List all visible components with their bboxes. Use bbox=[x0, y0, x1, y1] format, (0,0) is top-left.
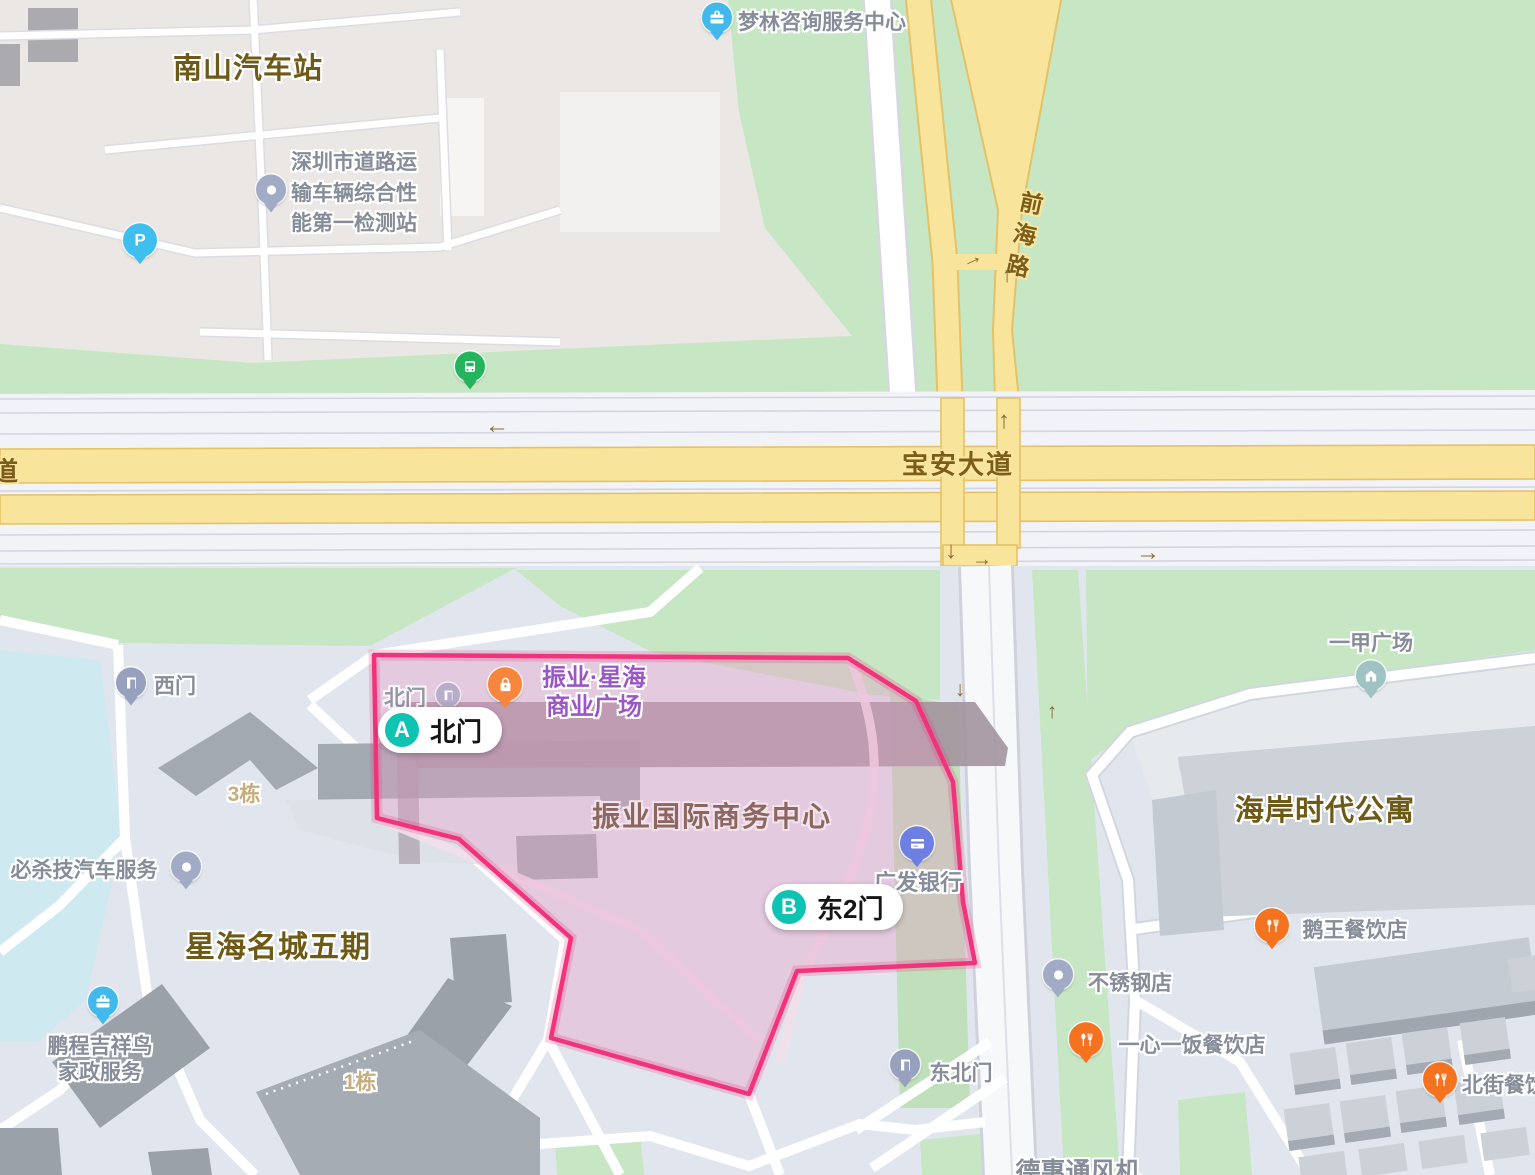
bank-card-icon bbox=[908, 834, 927, 853]
parking-pin[interactable]: P bbox=[123, 223, 157, 257]
shopping-plaza-pin[interactable] bbox=[488, 667, 522, 701]
map-base-layer bbox=[0, 0, 1535, 1175]
goose-king-pin[interactable] bbox=[1255, 908, 1289, 942]
briefcase-icon bbox=[94, 993, 112, 1010]
west-gate-pin[interactable] bbox=[116, 668, 146, 698]
door-icon bbox=[897, 1056, 914, 1073]
dot-icon bbox=[263, 181, 280, 198]
bank-pin[interactable] bbox=[900, 826, 934, 860]
menglin-pin[interactable] bbox=[702, 3, 732, 33]
house-icon bbox=[1362, 667, 1380, 684]
bishaji-pin[interactable] bbox=[171, 852, 201, 882]
gate-marker-b[interactable]: B 东2门 bbox=[765, 884, 903, 930]
gate-marker-a-badge: A bbox=[385, 713, 419, 747]
door-icon bbox=[123, 674, 140, 691]
gate-marker-b-label: 东2门 bbox=[817, 889, 883, 926]
north-gate-small-pin[interactable] bbox=[436, 683, 460, 707]
restaurant-icon bbox=[1431, 1070, 1450, 1089]
shopping-bag-icon bbox=[496, 675, 515, 694]
dot-icon bbox=[1050, 966, 1067, 983]
gate-marker-a-label: 北门 bbox=[430, 712, 482, 749]
gate-marker-a[interactable]: A 北门 bbox=[378, 707, 502, 753]
pengcheng-pin[interactable] bbox=[88, 987, 118, 1017]
bus-stop-pin[interactable] bbox=[455, 352, 485, 382]
inspection-station-pin[interactable] bbox=[256, 175, 286, 205]
stainless-pin[interactable] bbox=[1043, 960, 1073, 990]
map-canvas[interactable]: 南山汽车站 深圳市道路运 输车辆综合性 能第一检测站 梦林咨询服务中心 前海路 … bbox=[0, 0, 1535, 1175]
briefcase-icon bbox=[708, 9, 726, 26]
beijie-pin[interactable] bbox=[1423, 1062, 1457, 1096]
restaurant-icon bbox=[1077, 1030, 1096, 1049]
city-block-northwest bbox=[0, 0, 852, 363]
northeast-gate-pin[interactable] bbox=[890, 1050, 920, 1080]
dot-icon bbox=[178, 858, 195, 875]
yijia-plaza-pin[interactable] bbox=[1356, 661, 1386, 691]
parking-icon: P bbox=[134, 230, 145, 250]
restaurant-icon bbox=[1263, 916, 1282, 935]
gate-marker-b-badge: B bbox=[772, 890, 806, 924]
door-icon bbox=[441, 687, 456, 702]
yixin-yifan-pin[interactable] bbox=[1069, 1022, 1103, 1056]
bus-icon bbox=[461, 358, 479, 375]
